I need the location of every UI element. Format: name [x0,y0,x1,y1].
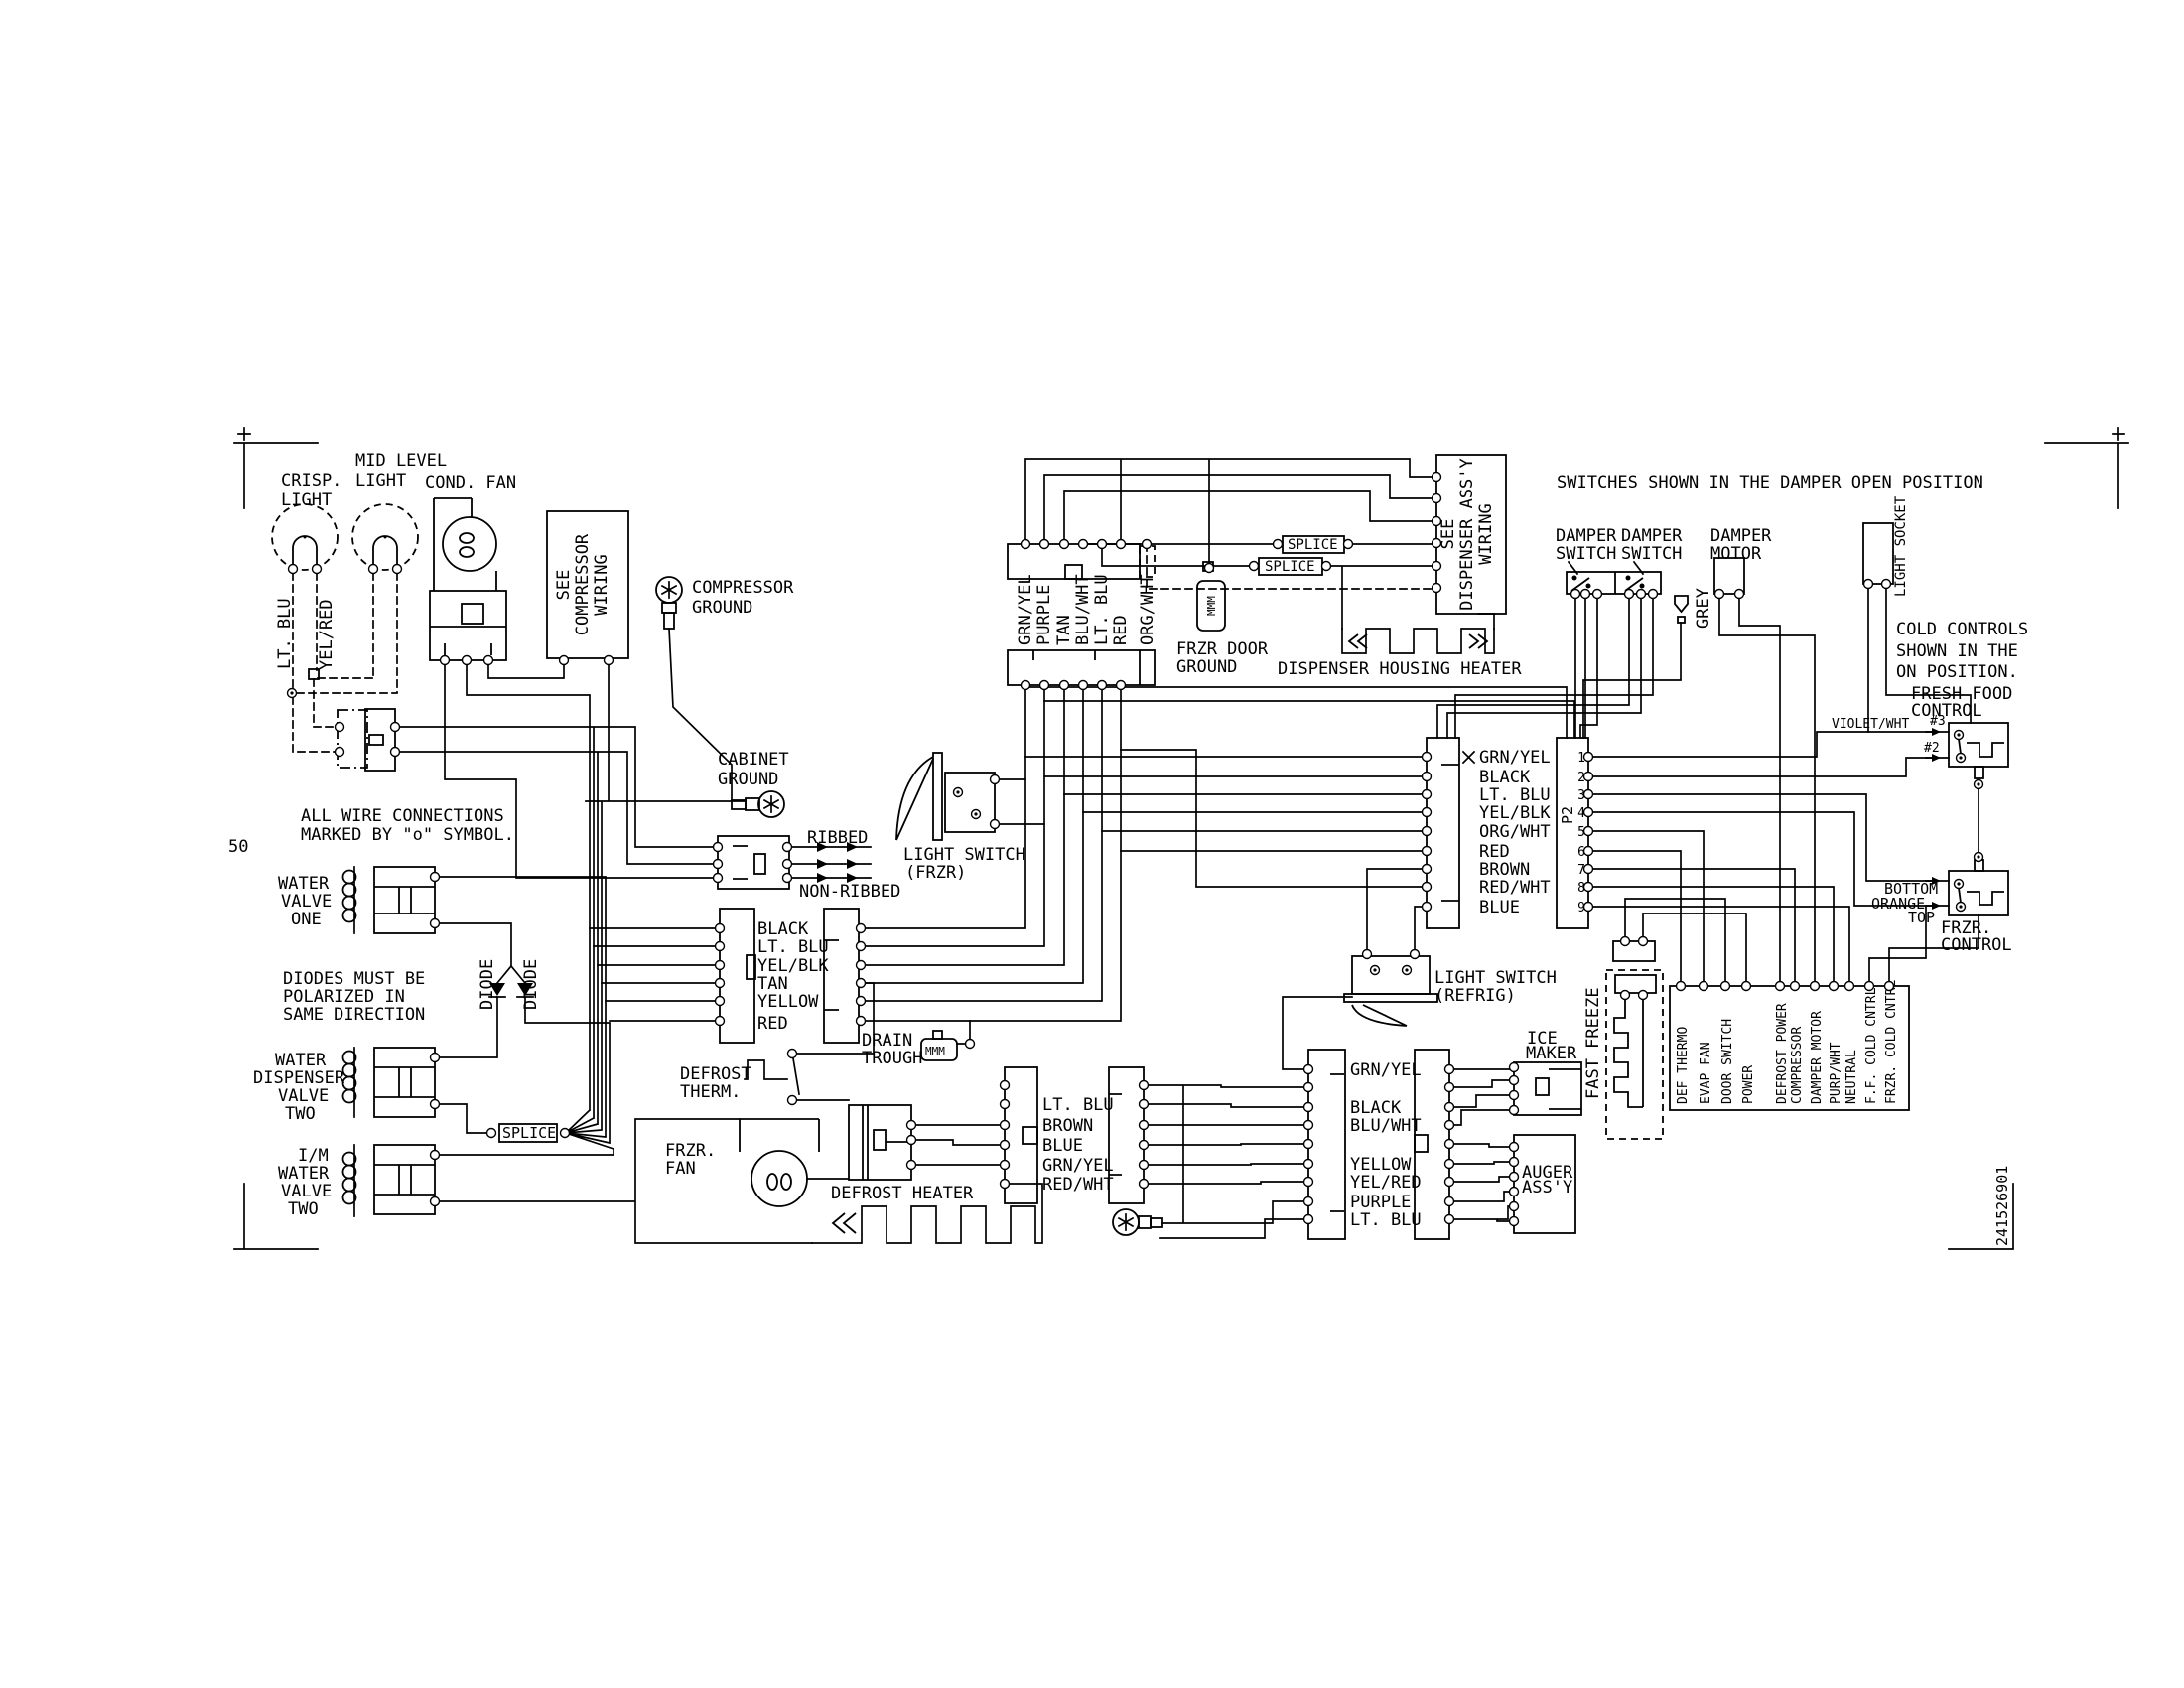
damper-switch-assembly [1567,562,1661,594]
terminal [1584,903,1593,912]
water-valve-one-label: WATER [278,874,330,894]
cond-fan-label: COND. FAN [425,473,516,492]
violet-wht-label: VIOLET/WHT [1832,717,1909,732]
harness-wire-label: YELLOW [757,992,819,1012]
terminal [1411,950,1420,959]
im-water-valve-label: WATER [278,1164,330,1184]
terminal [1140,1161,1149,1170]
top-conn-wire-label: LT. BLU [1092,574,1112,645]
terminal [1363,950,1372,959]
terminal [857,997,866,1006]
terminal [1625,590,1634,599]
see-dispenser-label: SEE [1438,519,1458,550]
terminal [1621,937,1630,946]
frzr-control-label: CONTROL [1941,935,2012,955]
ribbed-label: RIBBED [807,828,868,848]
terminal [1581,590,1590,599]
damper-motor-label: DAMPER [1710,526,1772,546]
terminal [716,942,725,951]
light-switch-frzr-label: (FRZR) [905,863,966,883]
splice-label: SPLICE [1265,559,1315,575]
terminal [1510,1188,1519,1196]
damper-switch-label: DAMPER [1556,526,1617,546]
dispenser-housing-heater-label: DISPENSER HOUSING HEATER [1278,659,1522,679]
bottom-center-wire-label: BLUE [1042,1136,1083,1156]
terminal [788,1096,797,1105]
terminal [1584,847,1593,856]
wiring-diagram-page: CRISP. LIGHT MID LEVEL LIGHT COND. FAN S… [0,0,2184,1688]
cond-fan-symbol [430,498,506,660]
cold-controls-note: SHOWN IN THE [1896,641,2018,661]
grey-plug-symbol [1675,596,1688,623]
terminal [1140,1100,1149,1109]
terminal [907,1161,916,1170]
terminal [1433,517,1441,526]
terminal [1742,982,1751,991]
terminal [991,820,1000,829]
terminal-block-label: DOOR SWITCH [1720,1019,1735,1104]
terminal [1423,808,1432,817]
terminal [431,919,440,928]
ice-maker-box [1514,1062,1581,1115]
terminal [1423,827,1432,836]
terminal [1510,1076,1519,1085]
terminal [857,979,866,988]
cold-controls-note: COLD CONTROLS [1896,620,2028,639]
bottom-right-wire-label: BLU/WHT [1350,1116,1422,1136]
terminal [1079,540,1088,549]
terminal [1304,1197,1313,1206]
crisp-light-symbol [272,504,338,570]
bottom-center-wire-label: BROWN [1042,1116,1093,1136]
mid-right-wire-label: BLACK [1479,768,1531,787]
terminal [716,997,725,1006]
frzr-fan-label: FAN [665,1159,696,1179]
terminal [714,860,723,869]
terminal [1423,753,1432,762]
terminal [1304,1178,1313,1187]
terminal [991,775,1000,784]
terminal [431,873,440,882]
mid-right-wire-label: YEL/BLK [1479,803,1551,823]
wire-connections-note: MARKED BY "o" SYMBOL. [301,825,514,845]
terminal [1637,590,1646,599]
light-switch-refrig-label: LIGHT SWITCH [1434,968,1557,988]
see-compressor-label: COMPRESSOR [573,533,593,635]
splice-label: SPLICE [1288,537,1338,553]
junction-dot [956,790,959,793]
terminal [1510,1143,1519,1152]
bottom-right-wire-label: LT. BLU [1350,1210,1422,1230]
fast-freeze-assembly [1606,941,1663,1139]
terminal [1510,1106,1519,1115]
top-conn-wire-label: GRN/YEL [1016,574,1035,645]
junction-dot [1977,782,1979,785]
terminal [393,565,402,574]
top-label: TOP [1908,909,1935,926]
terminal [1584,865,1593,874]
top-conn-wire-label: ORG/WHT [1138,574,1158,645]
terminal-block-label: DEFROST POWER [1775,1003,1790,1104]
terminal [716,924,725,933]
terminal [1140,1081,1149,1090]
terminal [1344,540,1353,549]
terminal [1304,1140,1313,1149]
terminal-block-label: EVAP FAN [1699,1042,1713,1104]
terminal [1885,982,1894,991]
junction-dot [1405,968,1408,971]
top-conn-wire-label: RED [1111,615,1131,645]
terminal [1433,562,1441,571]
terminal [1143,540,1152,549]
damper-switch-label: SWITCH [1621,544,1682,564]
left-switch [309,669,395,771]
junction-dot [1959,905,1962,908]
frzr-fan-symbol [740,1119,819,1206]
mid-right-wire-label: ORG/WHT [1479,822,1551,842]
diode-label: DIODE [478,959,497,1010]
terminal [1040,540,1049,549]
water-valve-one-symbol [343,867,436,933]
terminal [1098,681,1107,690]
drain-trough-label: DRAIN [862,1031,912,1051]
terminal [1584,790,1593,799]
cabinet-ground-label: CABINET [718,750,789,770]
terminal [1445,1121,1454,1130]
defrost-heater-arrows [833,1213,856,1233]
terminal [1721,982,1730,991]
crisp-light-label: CRISP. [281,471,341,491]
terminal [1445,1065,1454,1074]
mid-level-light-label: MID LEVEL [355,451,447,471]
terminal-block-label: DAMPER MOTOR [1810,1011,1825,1104]
terminal [1510,1063,1519,1072]
terminal [857,1017,866,1026]
mmm-label: MMM [1205,596,1218,616]
see-compressor-label: SEE [554,570,574,601]
page-number: 50 [228,837,248,857]
water-valve-one-label: ONE [291,910,322,929]
terminal [1022,540,1030,549]
terminal [1423,773,1432,781]
terminal [1510,1158,1519,1167]
terminal [857,961,866,970]
wire-connections-note: ALL WIRE CONNECTIONS [301,806,504,826]
wires-left [354,629,812,1243]
harness-wire-label: BLACK [757,919,809,939]
terminal [1322,562,1331,571]
fresh-food-control-label: CONTROL [1911,701,1982,721]
damper-motor-label: MOTOR [1710,544,1762,564]
terminal [1510,1202,1519,1211]
terminal [1304,1103,1313,1112]
terminal-block-label: FRZR. COLD CNTRL [1884,980,1899,1104]
terminal [369,565,378,574]
terminal [1864,580,1873,589]
terminal [431,1054,440,1062]
terminal [431,1197,440,1206]
terminal [1584,827,1593,836]
mid-right-wire-label: BLUE [1479,898,1520,917]
junction-dot [290,691,293,694]
junction-dot [1977,855,1979,858]
terminal [391,723,400,732]
terminal [1445,1215,1454,1224]
terminal [1140,1121,1149,1130]
terminal [1715,590,1724,599]
light-switch-refrig-label: (REFRIG) [1434,986,1516,1006]
bottom-ground-lug [1113,1209,1162,1235]
cabinet-ground-label: GROUND [718,770,778,789]
water-dispenser-valve-two-symbol [343,1048,436,1117]
light-socket-box [1863,523,1893,584]
terminal [1445,1103,1454,1112]
im-water-valve-label: TWO [288,1199,319,1219]
junction-dot [1959,756,1962,759]
damper-switch-label: SWITCH [1556,544,1616,564]
terminal [966,1040,975,1049]
terminal [1510,1217,1519,1226]
defrost-therm-label: THERM. [680,1082,741,1102]
terminal-block-label: NEUTRAL [1844,1050,1859,1104]
terminal [1445,1083,1454,1092]
terminal [1735,590,1744,599]
terminal [857,924,866,933]
drain-trough-label: TROUGH [862,1049,922,1068]
wire-label-yel-red: YEL/RED [317,599,337,670]
compressor-ground-label: COMPRESSOR [692,578,794,598]
terminal [336,748,344,757]
terminal [1304,1121,1313,1130]
cabinet-ground-lug [732,791,784,817]
harness-wire-label: RED [757,1014,788,1034]
terminal [783,860,792,869]
mid-level-light-symbol [352,504,418,570]
labels: CRISP. LIGHT MID LEVEL LIGHT COND. FAN S… [228,451,2028,1246]
terminal [1001,1121,1010,1130]
terminal [716,979,725,988]
wire-label-lt-blu: LT. BLU [275,598,295,669]
splice-label: SPLICE [502,1124,556,1142]
terminal [1423,903,1432,912]
bottom-center-wire-label: LT. BLU [1042,1095,1114,1115]
diodes-note: POLARIZED IN [283,987,405,1007]
terminal-block-label: POWER [1741,1065,1756,1104]
terminal [1001,1161,1010,1170]
terminal-block-label: COMPRESSOR [1790,1027,1805,1104]
junction-dot [974,812,977,815]
terminal [431,1100,440,1109]
light-socket-label: LIGHT SOCKET [1893,495,1909,597]
wires-bottom [1144,997,1514,1238]
bottom-right-wire-label: GRN/YEL [1350,1060,1422,1080]
terminal [1001,1180,1010,1189]
defrost-heater-label: DEFROST HEATER [831,1184,974,1203]
terminal [1445,1140,1454,1149]
light-switch-frzr-symbol [896,753,995,840]
terminal [313,565,322,574]
non-ribbed-label: NON-RIBBED [799,882,900,902]
terminal [1445,1197,1454,1206]
frzr-fan-connector [849,1105,911,1180]
terminal [1584,883,1593,892]
terminal [560,656,569,665]
terminal-block-label: F.F. COLD CNTRL [1864,987,1879,1104]
mid-right-wire-label: GRN/YEL [1479,748,1551,768]
terminal [788,1050,797,1058]
terminal [1865,982,1874,991]
terminal [907,1136,916,1145]
water-dispenser-valve-label: TWO [285,1104,316,1124]
grey-label: GREY [1694,588,1713,629]
terminal [1445,1160,1454,1169]
terminal [1060,540,1069,549]
terminal-block-label: DEF THERMO [1676,1027,1691,1104]
frzr-control-symbol [1932,860,2008,915]
fast-freeze-label: FAST FREEZE [1583,987,1603,1099]
damper-switch-label: DAMPER [1621,526,1683,546]
auger-assy-label: ASS'Y [1522,1178,1572,1197]
terminal [1649,590,1658,599]
terminal [1811,982,1820,991]
pin2-label: #2 [1924,741,1940,756]
terminal [783,874,792,883]
water-dispenser-valve-label: WATER [275,1051,327,1070]
terminal [1040,681,1049,690]
terminal [1423,865,1432,874]
terminal [605,656,614,665]
frzr-fan-label: FRZR. [665,1141,716,1161]
top-conn-wire-label: TAN [1054,615,1074,645]
junction-dot [1957,733,1960,736]
mid-right-wire-label: RED/WHT [1479,878,1551,898]
terminal [1639,991,1648,1000]
mid-level-light-label: LIGHT [355,471,406,491]
terminal [1791,982,1800,991]
terminal [1001,1081,1010,1090]
terminal [487,1129,496,1138]
refrigerator-wiring-schematic: CRISP. LIGHT MID LEVEL LIGHT COND. FAN S… [0,0,2184,1688]
terminal [1584,808,1593,817]
compressor-ground-lug [656,577,682,629]
terminal [1140,1141,1149,1150]
see-compressor-label: WIRING [592,554,612,615]
terminal [441,656,450,665]
im-water-valve-label: I/M [298,1146,329,1166]
water-dispenser-valve-label: VALVE [278,1086,329,1106]
terminal [1423,883,1432,892]
terminal [1584,753,1593,762]
terminal [1510,1173,1519,1182]
terminal [1433,473,1441,482]
frzr-door-ground-label: GROUND [1176,657,1237,677]
bottom-right-wire-label: BLACK [1350,1098,1402,1118]
light-switch-refrig-symbol [1344,956,1437,1026]
terminal [1423,790,1432,799]
terminal [336,723,344,732]
see-dispenser-label: WIRING [1476,503,1496,564]
bottom-center-wire-label: GRN/YEL [1042,1156,1114,1176]
terminal [1022,681,1030,690]
bottom-center-wire-label: RED/WHT [1042,1175,1114,1195]
terminal [1304,1083,1313,1092]
cold-controls-note: ON POSITION. [1896,662,2018,682]
terminal [1830,982,1839,991]
mid-right-wire-label: LT. BLU [1479,785,1551,805]
terminal [1079,681,1088,690]
terminal [714,874,723,883]
terminal [1117,681,1126,690]
terminal [1882,580,1891,589]
compressor-ground-label: GROUND [692,598,752,618]
terminal [1117,540,1126,549]
terminal [1001,1141,1010,1150]
terminal [1700,982,1708,991]
terminal [1621,991,1630,1000]
harness-wire-label: TAN [757,974,788,994]
terminal [1593,590,1602,599]
terminal [1304,1215,1313,1224]
pin3-label: #3 [1930,714,1946,729]
terminal [431,1151,440,1160]
mid-right-wire-label: BROWN [1479,860,1530,880]
im-water-valve-two-symbol [343,1145,436,1214]
terminal [1571,590,1580,599]
mmm-label: MMM [925,1045,945,1057]
top-conn-wire-label: PURPLE [1034,585,1054,645]
bottom-right-wire-label: PURPLE [1350,1193,1411,1212]
terminal-block-label: PURP/WHT [1829,1042,1843,1104]
im-water-valve-label: VALVE [281,1182,332,1201]
terminal [1250,562,1259,571]
terminal [716,961,725,970]
diodes-note: DIODES MUST BE [283,969,425,989]
terminal [1433,539,1441,548]
terminal [1433,584,1441,593]
terminal [1001,1100,1010,1109]
terminal [714,843,723,852]
terminal [857,942,866,951]
terminal [907,1121,916,1130]
mid-right-wire-label: RED [1479,842,1510,862]
terminal [1098,540,1107,549]
defrost-therm-label: DEFROST [680,1064,751,1084]
terminal [1845,982,1854,991]
terminal [1140,1180,1149,1189]
terminal [1423,847,1432,856]
terminal [1510,1091,1519,1100]
junction-dot [1957,882,1960,885]
harness-wire-label: YEL/BLK [757,956,829,976]
terminal [1639,937,1648,946]
top-conn-wire-label: BLU/WHT [1073,574,1093,645]
terminal [1584,773,1593,781]
terminal [783,843,792,852]
part-number: 241526901 [1993,1166,2011,1246]
harness-wire-label: LT. BLU [757,937,829,957]
terminal [1304,1160,1313,1169]
crisp-light-label: LIGHT [281,491,332,510]
terminal [1776,982,1785,991]
terminal [1205,564,1214,573]
terminal [463,656,472,665]
junction-dot [1373,968,1376,971]
see-dispenser-label: DISPENSER ASS'Y [1457,458,1477,611]
light-switch-frzr-label: LIGHT SWITCH [903,845,1025,865]
terminal [716,1017,725,1026]
bottom-right-wire-label: YEL/RED [1350,1173,1422,1193]
diode-label: DIODE [521,959,541,1010]
